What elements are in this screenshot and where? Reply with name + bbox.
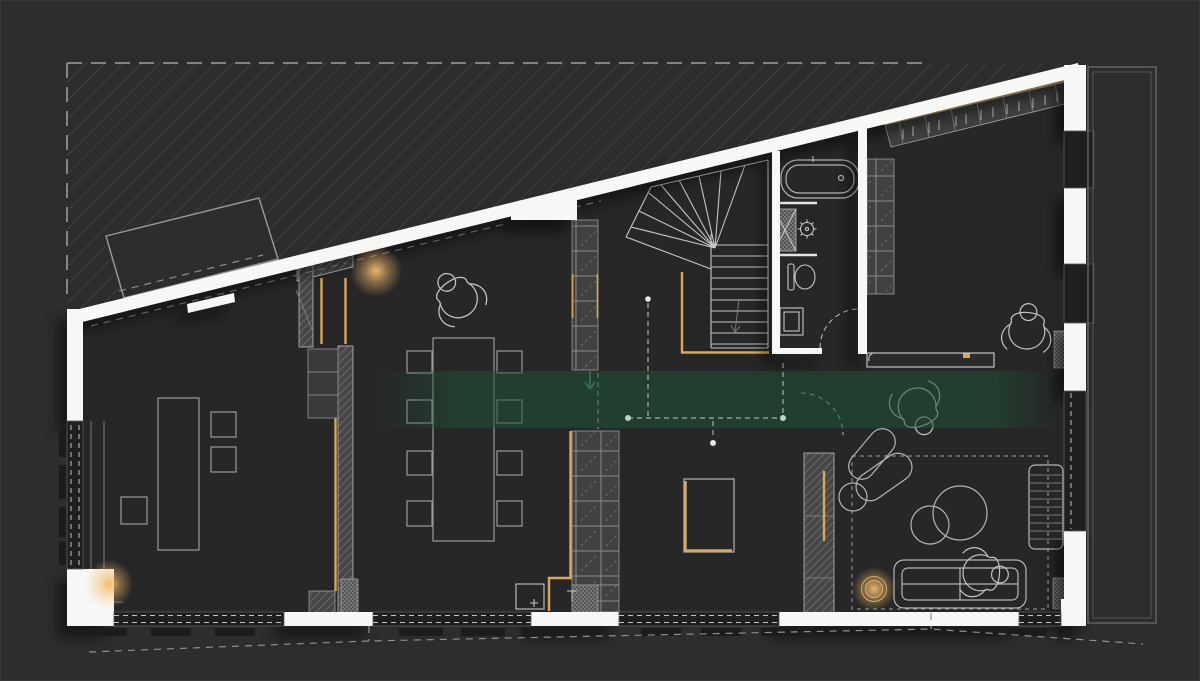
floor-plan-canvas [0, 0, 1200, 681]
light-node [780, 415, 786, 421]
shelf-box [308, 372, 338, 395]
shelf-box [308, 395, 338, 418]
ceiling-light-glow [85, 560, 133, 608]
right-wall-segment [1064, 65, 1086, 131]
right-wall-segment [1064, 531, 1086, 626]
counter-amber-item [963, 354, 970, 359]
right-wall-segment [1064, 323, 1086, 391]
bathroom-wall-west [772, 151, 780, 354]
bathroom-wall-east [858, 129, 867, 354]
shelf-box [308, 349, 338, 372]
bottom-wall-pier [531, 612, 619, 626]
kitchen-counter [867, 353, 994, 367]
light-node [710, 440, 716, 446]
green-lighting-zone [379, 371, 1056, 428]
floor-plan-drawing [1, 1, 1200, 681]
bottom-wall-pier [284, 612, 373, 626]
living-west-wall [804, 453, 834, 613]
ceiling-light-glow [350, 245, 402, 297]
light-node [625, 415, 631, 421]
closet-column [866, 159, 895, 294]
light-node [645, 296, 651, 302]
bathroom-wall-south [772, 348, 822, 354]
neighbor-parcel-outline [1088, 67, 1156, 623]
lamp-glow [852, 567, 896, 611]
left-wall-upper [67, 309, 83, 421]
bottom-wall-pier [779, 612, 1019, 626]
right-wall-segment [1064, 188, 1086, 264]
sill-ticks [93, 628, 1047, 636]
